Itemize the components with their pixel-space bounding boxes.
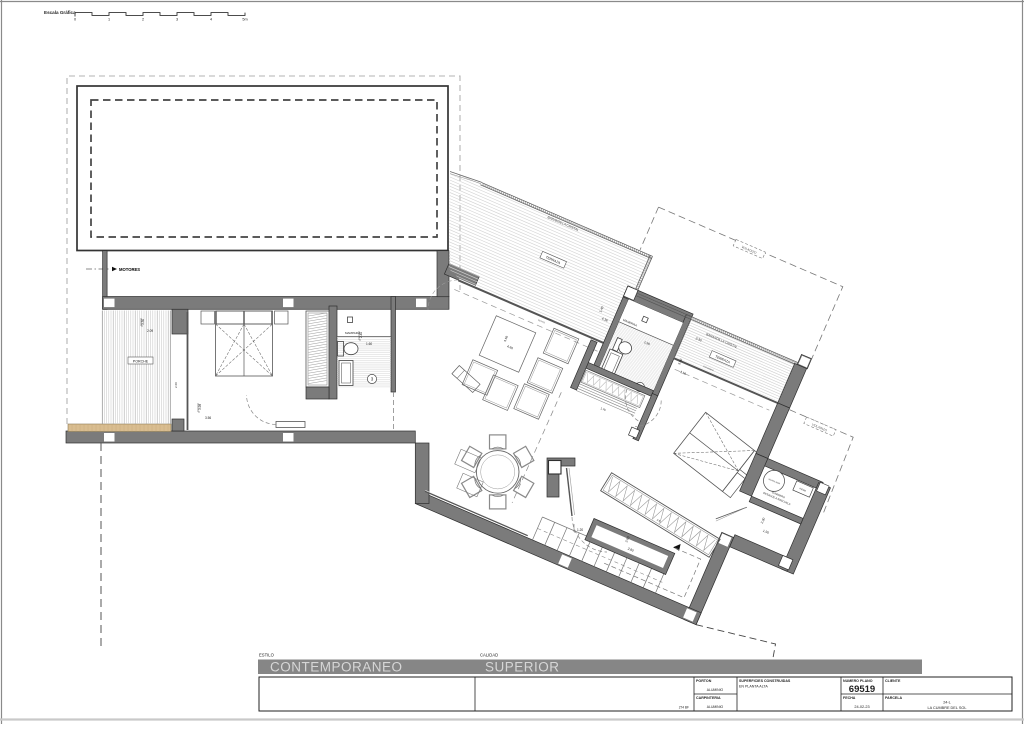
svg-text:SUPERIOR: SUPERIOR [485, 660, 560, 675]
svg-text:LA CUMBRE DEL SOL: LA CUMBRE DEL SOL [928, 706, 967, 710]
svg-text:PARCELA: PARCELA [885, 696, 903, 700]
svg-text:274 BF: 274 BF [679, 706, 689, 710]
svg-text:CLIENTE: CLIENTE [885, 679, 901, 683]
svg-text:Escala Gráfica: Escala Gráfica [44, 10, 76, 15]
svg-text:2.40: 2.40 [359, 332, 363, 338]
svg-text:ALUMINIO: ALUMINIO [707, 688, 724, 692]
svg-text:3.98: 3.98 [198, 404, 202, 410]
svg-text:24-L: 24-L [943, 701, 951, 705]
svg-text:MAMPARA: MAMPARA [345, 331, 360, 335]
svg-text:0: 0 [74, 18, 76, 22]
svg-text:EN PLANTA ALTA: EN PLANTA ALTA [739, 685, 768, 689]
svg-text:3.56: 3.56 [205, 416, 211, 420]
svg-text:PORCHE: PORCHE [133, 359, 149, 363]
svg-text:CONTEMPORANEO: CONTEMPORANEO [270, 660, 403, 675]
svg-text:3.30: 3.30 [141, 319, 145, 325]
svg-text:PORTON: PORTON [696, 679, 712, 683]
svg-text:1.60: 1.60 [366, 342, 372, 346]
svg-text:1.20: 1.20 [577, 528, 583, 532]
svg-text:2: 2 [142, 18, 144, 22]
svg-text:ESTILO: ESTILO [259, 653, 275, 658]
svg-text:1: 1 [108, 18, 110, 22]
svg-text:3: 3 [176, 18, 178, 22]
svg-text:FECHA: FECHA [843, 696, 856, 700]
svg-text:CALIDAD: CALIDAD [480, 653, 498, 658]
svg-text:ALUMINIO: ALUMINIO [707, 705, 724, 709]
svg-text:2.60: 2.60 [174, 382, 178, 388]
svg-text:SUPERFICIES CONSTRUIDAS: SUPERFICIES CONSTRUIDAS [739, 679, 791, 683]
svg-text:2.09: 2.09 [147, 329, 153, 333]
svg-text:5m: 5m [242, 18, 247, 22]
svg-text:CARPINTERIA: CARPINTERIA [696, 696, 721, 700]
svg-text:4: 4 [210, 18, 212, 22]
svg-text:24-02-23: 24-02-23 [854, 705, 869, 709]
svg-text:69519: 69519 [849, 684, 875, 695]
svg-text:NUMERO PLANO: NUMERO PLANO [843, 679, 873, 683]
svg-text:MOTORES: MOTORES [119, 267, 140, 272]
